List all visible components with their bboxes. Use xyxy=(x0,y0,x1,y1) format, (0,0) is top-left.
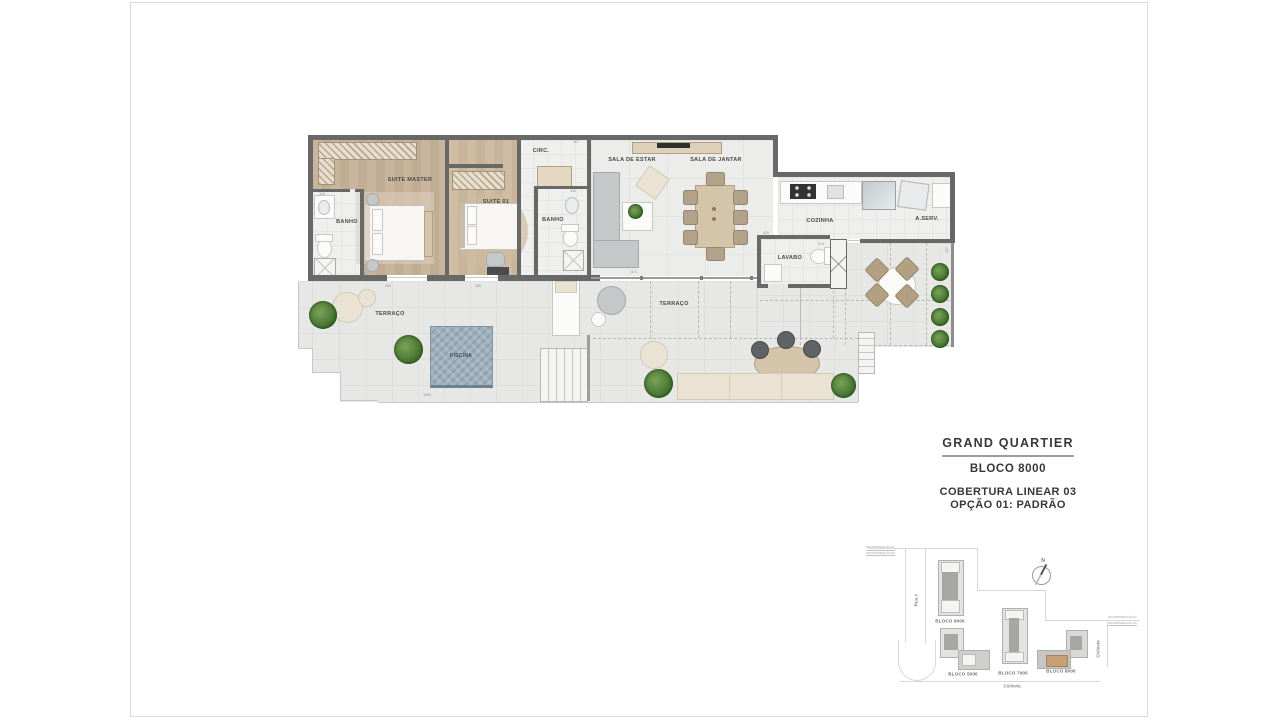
building-core xyxy=(942,572,958,602)
wall xyxy=(773,172,955,177)
pendant-light xyxy=(712,217,716,221)
bed-pillow xyxy=(372,209,383,231)
road-edge xyxy=(905,548,906,643)
washer xyxy=(862,181,896,210)
tv xyxy=(657,143,690,148)
glass-door-post xyxy=(700,276,703,280)
pergola-line xyxy=(926,243,927,345)
option-line-1: COBERTURA LINEAR 03 xyxy=(908,486,1108,499)
dining-chair xyxy=(733,230,748,245)
plot-boundary xyxy=(900,681,1100,682)
plot-boundary xyxy=(868,548,977,549)
pergola-line xyxy=(730,281,731,338)
chair xyxy=(486,252,505,267)
wall xyxy=(360,189,364,275)
wardrobe-hatch xyxy=(452,171,505,190)
pergola-line xyxy=(833,281,834,338)
building-label-bloco-6000: BLOCO 6000 xyxy=(935,619,965,624)
dimension-label: 337 xyxy=(945,247,949,253)
room-label-circ: CIRC. xyxy=(533,148,549,154)
terrace-wall-right xyxy=(951,243,954,347)
building-core xyxy=(944,634,958,650)
wall xyxy=(757,235,761,288)
title-divider xyxy=(942,455,1074,457)
room-label-banho-master: BANHO xyxy=(336,219,358,225)
wall xyxy=(498,275,600,281)
road-edge xyxy=(925,548,926,643)
shaft xyxy=(830,239,847,289)
stairs xyxy=(540,348,588,402)
wall xyxy=(449,164,503,168)
room-label-piscina: PISCINA xyxy=(450,353,472,359)
ottoman xyxy=(358,289,376,307)
kitchen-sink xyxy=(827,185,844,199)
wall xyxy=(308,135,778,140)
plant-icon xyxy=(644,369,673,398)
block-title: BLOCO 8000 xyxy=(908,463,1108,475)
dimension-label: 260 xyxy=(475,284,481,288)
sink xyxy=(764,264,782,282)
room-label-cozinha: COZINHA xyxy=(806,218,833,224)
page-canvas: SUITE MASTER SUITE 01 BANHO BANHO CIRC. … xyxy=(0,0,1280,720)
dryer xyxy=(897,180,929,211)
sofa-chaise xyxy=(593,240,639,268)
dining-chair xyxy=(733,190,748,205)
plot-boundary xyxy=(1107,620,1108,667)
terrace-outline xyxy=(298,348,312,349)
room-label-banho-suite: BANHO xyxy=(542,217,564,223)
closet-cabinet xyxy=(537,166,572,187)
tv-console xyxy=(487,267,509,275)
plant-icon xyxy=(931,263,949,281)
cooktop xyxy=(790,184,816,199)
plant-icon xyxy=(931,308,949,326)
building-label-bloco-8000: BLOCO 8000 xyxy=(1046,669,1076,674)
terrace-outline xyxy=(340,372,341,400)
sink xyxy=(318,200,330,215)
door-threshold xyxy=(387,277,427,278)
terrace-outline xyxy=(312,348,313,372)
building-bloco-8000-highlight xyxy=(1046,655,1068,667)
plant-icon xyxy=(628,204,643,219)
building-wing xyxy=(1005,652,1024,662)
plot-boundary xyxy=(1045,620,1107,621)
building-wing xyxy=(962,654,976,666)
outdoor-sofa xyxy=(677,373,834,400)
dining-chair xyxy=(683,210,698,225)
bed-headboard xyxy=(365,205,370,259)
door-threshold xyxy=(465,277,498,278)
pergola-line xyxy=(650,281,651,338)
wall xyxy=(950,172,955,243)
option-line-2: OPÇÃO 01: PADRÃO xyxy=(908,499,1108,512)
north-label: N xyxy=(1041,558,1045,564)
dining-chair xyxy=(706,247,725,261)
incorporacao-line: INCORPORAÇÃO 02 xyxy=(866,551,895,557)
wardrobe-hatch xyxy=(318,158,335,185)
pergola-line xyxy=(698,281,699,338)
plant-icon xyxy=(394,335,423,364)
building-core xyxy=(1070,636,1082,650)
room-label-a-serv: A.SERV. xyxy=(915,216,939,222)
room-label-terraco-2: TERRAÇO xyxy=(659,301,688,307)
dining-chair xyxy=(706,172,725,186)
wall xyxy=(517,140,521,275)
cul-de-sac xyxy=(898,640,936,681)
plot-boundary xyxy=(1045,590,1046,620)
glass-door-post xyxy=(640,276,643,280)
plant-icon xyxy=(931,330,949,348)
dimension-label: 213 xyxy=(818,242,824,246)
project-title: GRAND QUARTIER xyxy=(908,436,1108,450)
plant-icon xyxy=(831,373,856,398)
dimension-label: 871 xyxy=(631,270,637,274)
building-label-bloco-7000: BLOCO 7000 xyxy=(998,671,1028,676)
glass-door-line xyxy=(591,277,757,279)
door-threshold xyxy=(845,240,860,241)
wall xyxy=(860,239,955,243)
terrace-outline xyxy=(378,402,858,403)
incorporacao-note: INCORPORAÇÃO 01 INCORPORAÇÃO 02 xyxy=(866,545,895,556)
stairs-small xyxy=(858,332,875,374)
dimension-label: 420 xyxy=(763,231,769,235)
glass-door-post xyxy=(750,276,753,280)
dining-chair xyxy=(683,190,698,205)
dimension-label: 145 xyxy=(319,192,325,196)
wall xyxy=(534,186,587,189)
building-core xyxy=(1009,618,1019,654)
pergola-line xyxy=(593,338,858,339)
wall xyxy=(445,140,449,275)
terrace-outline xyxy=(340,400,378,401)
lounger-pillow xyxy=(555,281,577,293)
dining-chair xyxy=(733,210,748,225)
terrace-outline xyxy=(312,372,340,373)
toilet-tank xyxy=(315,234,333,242)
wall xyxy=(427,275,465,281)
street-label-ciclovia-bottom: Ciclovia xyxy=(1003,684,1020,689)
nightstand xyxy=(366,259,379,272)
building-wing xyxy=(941,600,960,613)
dining-chair xyxy=(683,230,698,245)
plant-icon xyxy=(309,301,337,329)
wall xyxy=(308,275,387,281)
bed-pillow xyxy=(372,233,383,255)
stairs-wall xyxy=(587,335,590,401)
wall xyxy=(773,135,778,177)
plot-boundary xyxy=(1107,620,1140,621)
wall xyxy=(757,235,830,239)
wall xyxy=(308,135,313,281)
dimension-label: 267 xyxy=(573,140,579,144)
sink xyxy=(565,197,579,214)
room-label-sala-de-estar: SALA DE ESTAR xyxy=(608,157,656,163)
title-block: GRAND QUARTIER BLOCO 8000 COBERTURA LINE… xyxy=(908,436,1108,512)
room-label-suite-master: SUITE MASTER xyxy=(388,177,433,183)
pergola-line xyxy=(760,300,950,301)
plant-icon xyxy=(931,285,949,303)
nightstand xyxy=(366,193,379,206)
incorporacao-line: INCORPORAÇÃO 02 xyxy=(1108,621,1137,627)
bed-pillow xyxy=(467,206,477,225)
dimension-label: 260 xyxy=(385,284,391,288)
bed-pillow xyxy=(467,226,477,245)
building-label-bloco-5000: BLOCO 5000 xyxy=(948,672,978,677)
plot-boundary xyxy=(977,590,1045,591)
armchair xyxy=(640,341,668,369)
street-label-ciclovia-right: Ciclovia xyxy=(1096,640,1101,657)
bed-bench xyxy=(424,211,433,257)
pendant-light xyxy=(712,207,716,211)
outdoor-chair xyxy=(777,331,795,349)
terrace-outline xyxy=(298,281,299,348)
outdoor-chair xyxy=(751,341,769,359)
dimension-label: 1425 xyxy=(423,393,431,397)
room-label-sala-de-jantar: SALA DE JANTAR xyxy=(690,157,742,163)
shower xyxy=(563,250,584,271)
outdoor-chair xyxy=(803,340,821,358)
armchair xyxy=(597,286,626,315)
room-label-suite-01: SUITE 01 xyxy=(483,199,509,205)
side-table xyxy=(591,312,606,327)
street-label-rua-a: Rua A xyxy=(914,594,919,607)
wall xyxy=(587,140,591,275)
wall xyxy=(757,284,768,288)
dimension-label: 130 xyxy=(570,189,576,193)
bed-headboard xyxy=(460,203,465,248)
wall xyxy=(534,186,538,275)
room-label-lavabo: LAVABO xyxy=(778,255,802,261)
room-label-terraco-1: TERRAÇO xyxy=(375,311,404,317)
toilet-tank xyxy=(561,224,579,232)
plot-boundary xyxy=(977,548,978,590)
wall xyxy=(788,284,830,288)
